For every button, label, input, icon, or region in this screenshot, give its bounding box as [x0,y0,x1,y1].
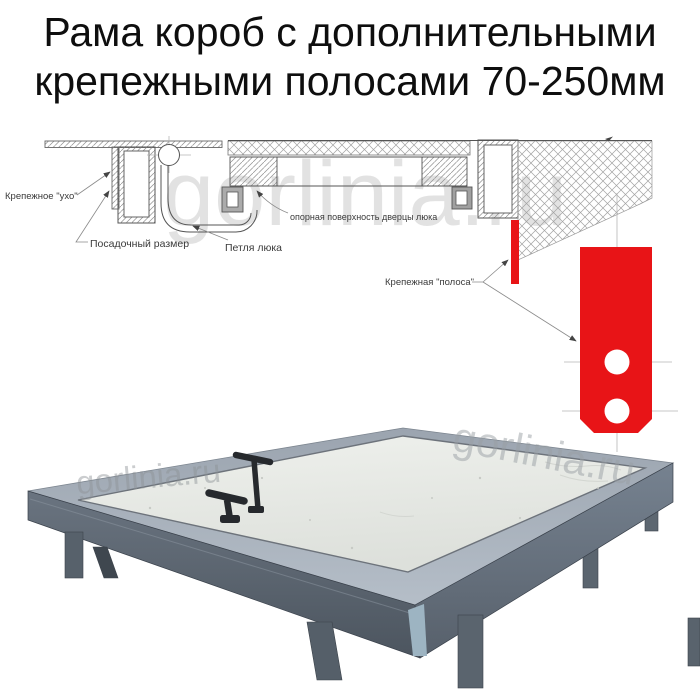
red-mounting-plate [580,247,652,433]
leg-front-right [458,615,483,688]
label-seat: Посадочный размер [90,238,189,250]
title-line-2: крепежными полосами 70-250мм [0,57,700,106]
door-section-right [422,157,467,186]
leg-left-2 [93,547,118,578]
label-hinge: Петля люка [225,242,282,254]
hinge-mount-right [452,187,472,209]
label-ear: Крепежное "ухо" [5,191,78,202]
wall-hatch-region [518,141,652,260]
leg-left-1 [65,532,83,578]
title-line-1: Рама короб с дополнительными [0,8,700,57]
leg-front-left [307,622,342,680]
technical-diagram: Крепежное "ухо" Посадочный размер Петля … [0,118,700,464]
door-section-left [230,157,277,186]
leg-right-edge [688,618,700,666]
right-frame-profile [478,140,518,218]
page-title: Рама короб с дополнительными крепежными … [0,8,700,106]
red-strip-edge [511,220,519,284]
ceiling-slab-right [228,141,470,155]
plate-hole-top [605,350,630,375]
label-strip: Крепежная "полоса" [385,277,474,288]
product-photo [0,420,700,700]
left-frame-profile [118,147,155,223]
label-support: опорная поверхность дверцы люка [290,212,437,222]
hinge-mount-left [222,187,243,212]
